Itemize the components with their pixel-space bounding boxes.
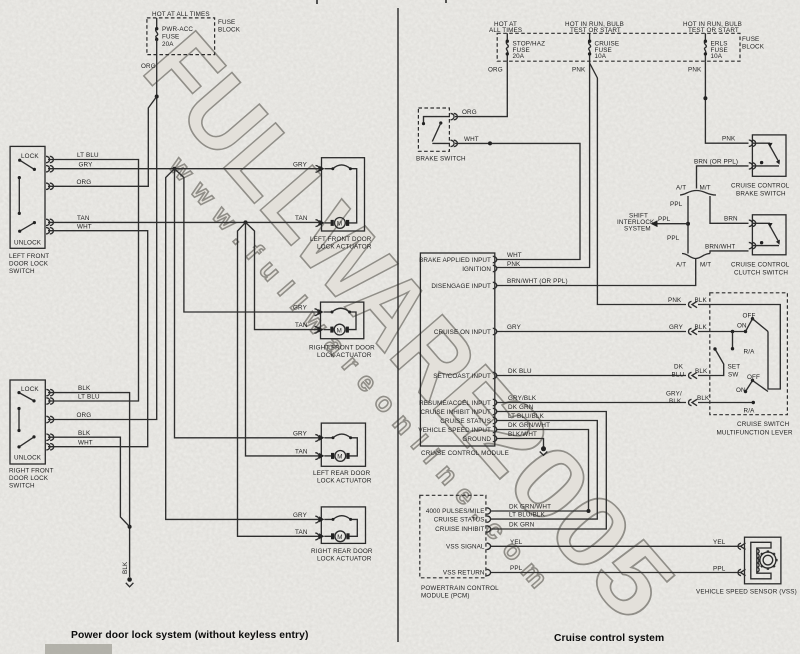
- svg-text:20A: 20A: [162, 41, 174, 48]
- svg-text:A/T: A/T: [676, 262, 686, 269]
- svg-text:LOCK ACTUATOR: LOCK ACTUATOR: [317, 555, 372, 562]
- svg-text:LT BLU/BLK: LT BLU/BLK: [509, 512, 546, 519]
- svg-text:CRUISE INHIBIT: CRUISE INHIBIT: [435, 526, 484, 533]
- svg-text:LOCK: LOCK: [21, 153, 39, 160]
- svg-text:FUSE: FUSE: [742, 36, 759, 43]
- svg-text:TAN: TAN: [77, 215, 90, 222]
- svg-text:RIGHT FRONT DOOR: RIGHT FRONT DOOR: [309, 345, 375, 352]
- svg-text:GRY/: GRY/: [666, 390, 682, 397]
- svg-text:ORG: ORG: [77, 412, 92, 419]
- svg-text:SWITCH: SWITCH: [9, 483, 35, 490]
- svg-text:CRUISE CONTROL: CRUISE CONTROL: [731, 262, 790, 269]
- svg-text:MULTIFUNCTION LEVER: MULTIFUNCTION LEVER: [717, 430, 794, 437]
- svg-text:VSS SIGNAL: VSS SIGNAL: [446, 544, 485, 551]
- svg-text:PPL: PPL: [510, 565, 523, 572]
- svg-text:BLK: BLK: [122, 561, 129, 574]
- svg-text:OFF: OFF: [747, 374, 760, 381]
- svg-text:10A: 10A: [595, 53, 607, 60]
- svg-text:PPL: PPL: [713, 565, 726, 572]
- svg-text:VEHICLE SPEED SENSOR (VSS): VEHICLE SPEED SENSOR (VSS): [696, 589, 797, 596]
- svg-text:PNK: PNK: [722, 136, 736, 143]
- svg-text:VEHICLE SPEED INPUT: VEHICLE SPEED INPUT: [418, 427, 491, 434]
- svg-text:DK GRN/WHT: DK GRN/WHT: [509, 504, 551, 511]
- svg-text:BRAKE SWITCH: BRAKE SWITCH: [736, 191, 786, 198]
- svg-text:DK GRN: DK GRN: [509, 522, 535, 529]
- svg-text:GRY: GRY: [669, 324, 684, 331]
- svg-text:BLK: BLK: [695, 368, 708, 375]
- svg-text:UNLOCK: UNLOCK: [14, 455, 42, 462]
- svg-text:WHT: WHT: [77, 224, 92, 231]
- svg-text:CRUISE CONTROL: CRUISE CONTROL: [731, 183, 790, 190]
- svg-text:ALL TIMES: ALL TIMES: [489, 27, 522, 34]
- svg-text:CRUISE ON INPUT: CRUISE ON INPUT: [434, 329, 491, 336]
- svg-text:ORG: ORG: [488, 67, 503, 74]
- svg-text:LEFT REAR DOOR: LEFT REAR DOOR: [313, 470, 371, 477]
- svg-text:LOCK ACTUATOR: LOCK ACTUATOR: [317, 352, 372, 359]
- svg-text:GRY/BLK: GRY/BLK: [508, 395, 537, 402]
- svg-text:M: M: [337, 221, 342, 228]
- svg-text:PNK: PNK: [688, 67, 702, 74]
- svg-text:IGNITION: IGNITION: [462, 266, 491, 273]
- svg-text:PNK: PNK: [668, 297, 682, 304]
- svg-text:A/T: A/T: [676, 185, 686, 192]
- svg-text:PPL: PPL: [658, 216, 671, 223]
- svg-text:GRY: GRY: [293, 512, 308, 519]
- svg-text:ON: ON: [737, 323, 747, 330]
- svg-text:CRUISE SWITCH: CRUISE SWITCH: [737, 421, 790, 428]
- svg-text:GRY: GRY: [293, 430, 308, 437]
- svg-text:FUSE: FUSE: [162, 34, 179, 41]
- svg-text:BRN/WHT: BRN/WHT: [705, 243, 735, 250]
- svg-text:WHT: WHT: [464, 136, 479, 143]
- svg-text:RIGHT FRONT: RIGHT FRONT: [9, 468, 54, 475]
- svg-text:PWR-ACC: PWR-ACC: [162, 26, 193, 33]
- svg-text:LOCK ACTUATOR: LOCK ACTUATOR: [317, 478, 372, 485]
- svg-text:PPL: PPL: [670, 201, 683, 208]
- svg-text:LEFT FRONT: LEFT FRONT: [9, 253, 49, 260]
- svg-text:M/T: M/T: [700, 185, 711, 192]
- svg-text:LEFT FRONT DOOR: LEFT FRONT DOOR: [310, 236, 372, 243]
- svg-text:BLK: BLK: [697, 395, 710, 402]
- svg-text:CRUISE STATUS: CRUISE STATUS: [434, 516, 485, 523]
- svg-text:SWITCH: SWITCH: [9, 268, 35, 275]
- svg-text:GRY: GRY: [79, 161, 94, 168]
- svg-text:YEL: YEL: [510, 539, 523, 546]
- svg-text:LT BLU/BLK: LT BLU/BLK: [508, 413, 545, 420]
- svg-text:BLOCK: BLOCK: [742, 44, 765, 51]
- svg-text:BRAKE APPLIED INPUT: BRAKE APPLIED INPUT: [419, 257, 491, 264]
- svg-text:PNK: PNK: [507, 261, 521, 268]
- svg-text:10A: 10A: [711, 53, 723, 60]
- svg-text:M/T: M/T: [700, 262, 711, 269]
- svg-text:BLK: BLK: [695, 324, 708, 331]
- svg-text:LOCK: LOCK: [21, 386, 39, 393]
- svg-text:DK BLU: DK BLU: [508, 368, 532, 375]
- svg-text:WHT: WHT: [78, 439, 93, 446]
- svg-text:DK: DK: [674, 364, 684, 371]
- svg-text:FUSE: FUSE: [218, 19, 235, 26]
- svg-text:CRUISE INHIBIT INPUT: CRUISE INHIBIT INPUT: [421, 409, 492, 416]
- svg-text:Power door lock system (withou: Power door lock system (without keyless …: [71, 630, 309, 641]
- svg-text:CRUISE STATUS: CRUISE STATUS: [440, 418, 491, 425]
- svg-text:BRN/WHT (OR PPL): BRN/WHT (OR PPL): [507, 278, 568, 285]
- svg-text:RESUME/ACCEL INPUT: RESUME/ACCEL INPUT: [419, 400, 491, 407]
- svg-text:POWERTRAIN CONTROL: POWERTRAIN CONTROL: [421, 585, 499, 592]
- svg-text:ON: ON: [736, 387, 746, 394]
- svg-text:TAN: TAN: [295, 449, 308, 456]
- svg-text:TAN: TAN: [295, 215, 308, 222]
- svg-text:BLU: BLU: [672, 371, 685, 378]
- svg-text:BRN (OR PPL): BRN (OR PPL): [694, 158, 738, 165]
- svg-text:ORG: ORG: [77, 179, 92, 186]
- svg-text:R/A: R/A: [744, 407, 756, 414]
- svg-text:BLK: BLK: [78, 385, 91, 392]
- svg-text:BLK/WHT: BLK/WHT: [508, 431, 537, 438]
- svg-text:LT BLU: LT BLU: [77, 152, 99, 159]
- svg-text:GROUND: GROUND: [462, 436, 491, 443]
- svg-text:UNLOCK: UNLOCK: [14, 240, 42, 247]
- svg-text:BRN: BRN: [724, 216, 738, 223]
- svg-text:DK GRN/WHT: DK GRN/WHT: [508, 422, 550, 429]
- svg-text:4000 PULSES/MILE: 4000 PULSES/MILE: [426, 508, 485, 515]
- svg-text:PNK: PNK: [572, 67, 586, 74]
- svg-text:ORG: ORG: [462, 109, 477, 116]
- svg-text:SET: SET: [728, 364, 741, 371]
- svg-text:R/A: R/A: [744, 349, 756, 356]
- svg-text:CRUISE CONTROL MODULE: CRUISE CONTROL MODULE: [421, 450, 509, 457]
- svg-text:M: M: [337, 327, 342, 334]
- svg-text:GRY: GRY: [507, 324, 522, 331]
- svg-text:CLUTCH SWITCH: CLUTCH SWITCH: [734, 270, 788, 277]
- svg-text:BLK: BLK: [695, 297, 708, 304]
- svg-text:DOOR LOCK: DOOR LOCK: [9, 261, 49, 268]
- svg-text:MODULE (PCM): MODULE (PCM): [421, 593, 470, 600]
- svg-text:BLOCK: BLOCK: [218, 27, 241, 34]
- svg-text:YEL: YEL: [713, 539, 726, 546]
- svg-text:Cruise control system: Cruise control system: [554, 633, 664, 644]
- svg-text:BLK: BLK: [669, 398, 682, 405]
- svg-text:M: M: [337, 454, 342, 461]
- svg-text:BLK: BLK: [78, 430, 91, 437]
- svg-text:20A: 20A: [513, 53, 525, 60]
- svg-text:DK GRN: DK GRN: [508, 404, 534, 411]
- svg-text:OFF: OFF: [743, 313, 756, 320]
- svg-text:SET/COAST INPUT: SET/COAST INPUT: [433, 373, 491, 380]
- svg-text:DOOR LOCK: DOOR LOCK: [9, 475, 49, 482]
- svg-text:GRY: GRY: [293, 305, 308, 312]
- svg-text:SYSTEM: SYSTEM: [624, 226, 651, 233]
- svg-text:M: M: [337, 534, 342, 541]
- svg-text:TAN: TAN: [295, 529, 308, 536]
- svg-text:TEST OR START: TEST OR START: [570, 27, 621, 34]
- svg-text:SW: SW: [728, 371, 738, 378]
- svg-text:TAN: TAN: [295, 322, 308, 329]
- svg-text:LOCK ACTUATOR: LOCK ACTUATOR: [317, 243, 372, 250]
- svg-text:GRY: GRY: [293, 161, 308, 168]
- svg-text:RIGHT REAR DOOR: RIGHT REAR DOOR: [311, 548, 373, 555]
- svg-text:BRAKE SWITCH: BRAKE SWITCH: [416, 156, 466, 163]
- svg-text:WHT: WHT: [507, 252, 522, 259]
- svg-text:VSS RETURN: VSS RETURN: [443, 570, 485, 577]
- svg-text:LT BLU: LT BLU: [78, 394, 100, 401]
- svg-text:PPL: PPL: [667, 235, 680, 242]
- svg-text:DISENGAGE INPUT: DISENGAGE INPUT: [431, 283, 491, 290]
- svg-text:ORG: ORG: [141, 63, 156, 70]
- svg-text:HOT AT ALL TIMES: HOT AT ALL TIMES: [152, 11, 210, 18]
- svg-text:TEST OR START: TEST OR START: [688, 27, 739, 34]
